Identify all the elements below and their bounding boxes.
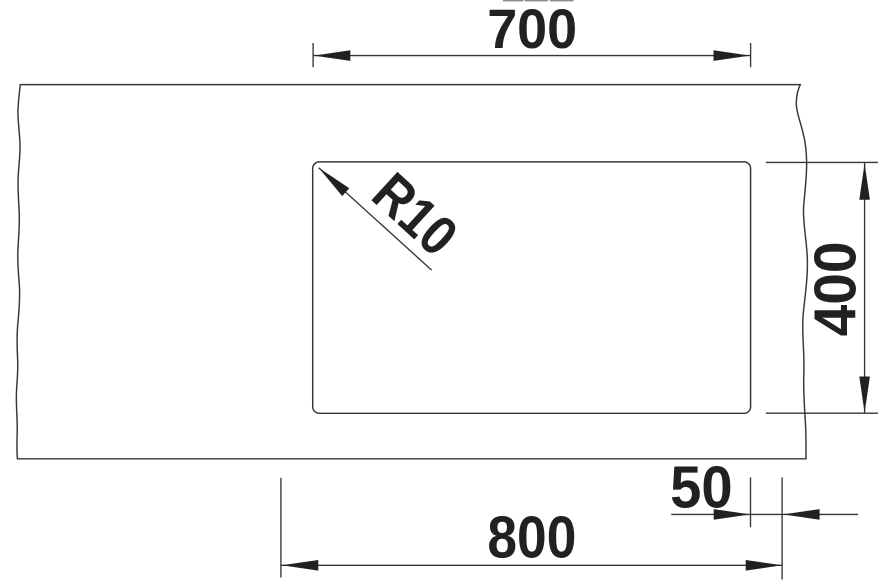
svg-text:700: 700 [487, 0, 577, 60]
svg-text:400: 400 [803, 241, 869, 336]
svg-text:50: 50 [670, 455, 733, 521]
svg-text:800: 800 [487, 505, 576, 571]
